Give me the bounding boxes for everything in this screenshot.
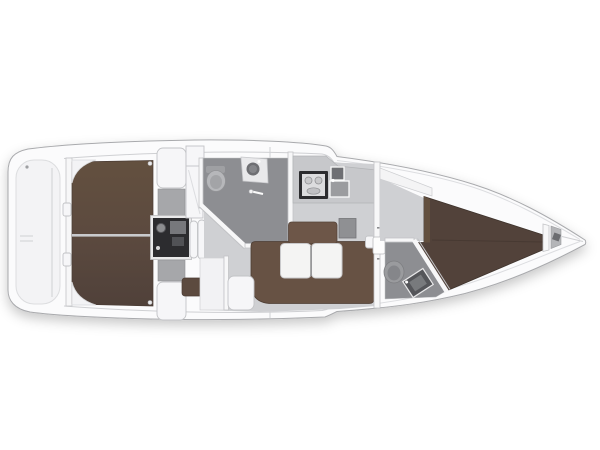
saloon-table: [281, 244, 343, 279]
table-leaf-left: [281, 244, 312, 279]
transom-wall: [66, 158, 72, 306]
table-leaf-right: [312, 244, 343, 279]
stern-step-bottom: [63, 253, 71, 266]
engine-part-2: [172, 237, 184, 246]
anchor-bulkhead: [543, 224, 549, 252]
chart-table-top: [339, 219, 356, 239]
deck-fitting-bottom: [148, 301, 152, 305]
toilet-bowl: [210, 175, 222, 189]
yacht-layout-canvas: Hull outline Swim platform / bathing ste…: [0, 0, 600, 450]
helm-area-starboard: [158, 260, 185, 281]
cockpit-seat-port: [157, 148, 186, 188]
v-berth-head-edge: [424, 197, 430, 243]
helm-area-port: [158, 189, 185, 217]
settee-back-cushion: [289, 222, 338, 244]
cabinet-under-steps: [200, 258, 224, 310]
galley-faucet: [331, 179, 334, 182]
engine-compartment: Engine compartment: [151, 216, 192, 260]
washbasin-bowl: [249, 165, 257, 173]
burner-1: [305, 177, 312, 184]
flagpole-socket: [25, 165, 28, 168]
deck-fitting-top: [148, 162, 152, 166]
engine-cap: [156, 246, 160, 250]
faucet: [258, 160, 261, 163]
engine-part-1: [170, 221, 186, 234]
fwd-toilet-bowl: [388, 266, 401, 281]
sink-small: [331, 167, 344, 180]
cockpit-teak-floor: [72, 161, 153, 307]
fwd-head-wall-top: [385, 238, 414, 242]
cockpit-traveler-line: [72, 234, 153, 237]
door-hinge-1: [377, 227, 379, 229]
door-hinge-2: [377, 258, 379, 260]
yacht-floor-plan: Hull outline Swim platform / bathing ste…: [0, 0, 600, 450]
sink-large: [330, 181, 349, 197]
burner-2: [315, 177, 322, 184]
chart-table: Chart table: [339, 219, 356, 239]
aft-head-wall-left: [199, 158, 203, 208]
bench-seat: Side bench seat: [228, 276, 254, 310]
bench-seat-box: [228, 276, 254, 310]
engine-pulley: [157, 224, 166, 233]
transom-platform: [16, 160, 60, 304]
shower-head: [249, 190, 253, 194]
stern-step-top: [63, 203, 71, 216]
main-bulkhead: [374, 162, 380, 308]
stove-grate: [307, 188, 320, 194]
step-1: [190, 221, 198, 258]
